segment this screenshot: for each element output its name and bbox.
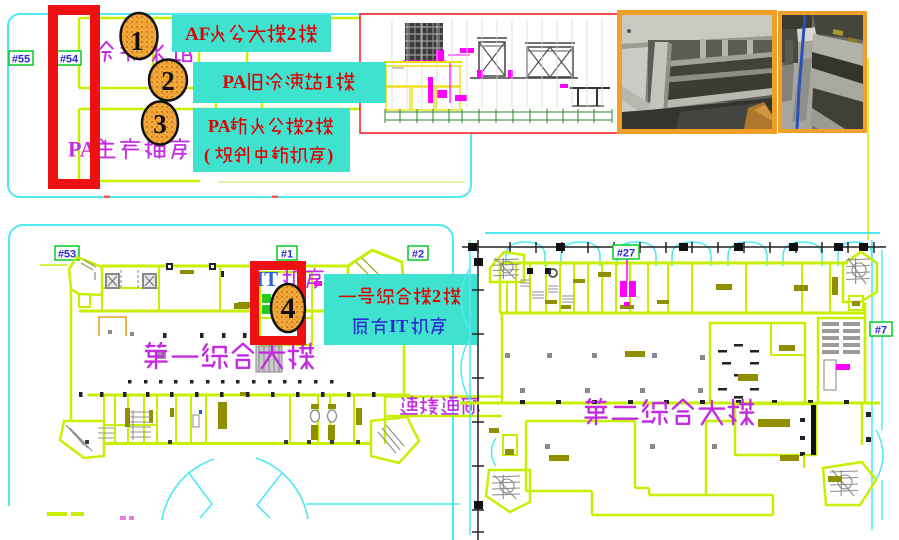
svg-text:#53: #53 [58,249,76,261]
svg-text:): ) [327,145,333,166]
svg-text:2: 2 [305,116,314,136]
svg-text:IT: IT [389,316,408,336]
svg-text:2: 2 [432,286,441,306]
svg-text:1: 1 [324,72,334,93]
svg-text:3: 3 [153,109,167,139]
svg-text:4: 4 [281,292,296,325]
svg-text:AF: AF [185,24,210,45]
svg-text:(: ( [204,145,210,166]
svg-text:#7: #7 [875,325,887,337]
svg-text:PA: PA [223,72,247,93]
svg-text:#55: #55 [12,54,30,66]
svg-text:2: 2 [287,24,297,45]
svg-text:#1: #1 [281,249,293,261]
svg-text:#2: #2 [412,249,424,261]
svg-text:PA: PA [208,116,231,136]
svg-text:#27: #27 [617,248,635,260]
svg-text:1: 1 [130,26,144,56]
svg-text:IT: IT [256,267,278,291]
svg-text:2: 2 [161,66,175,96]
svg-text:#54: #54 [60,54,79,66]
